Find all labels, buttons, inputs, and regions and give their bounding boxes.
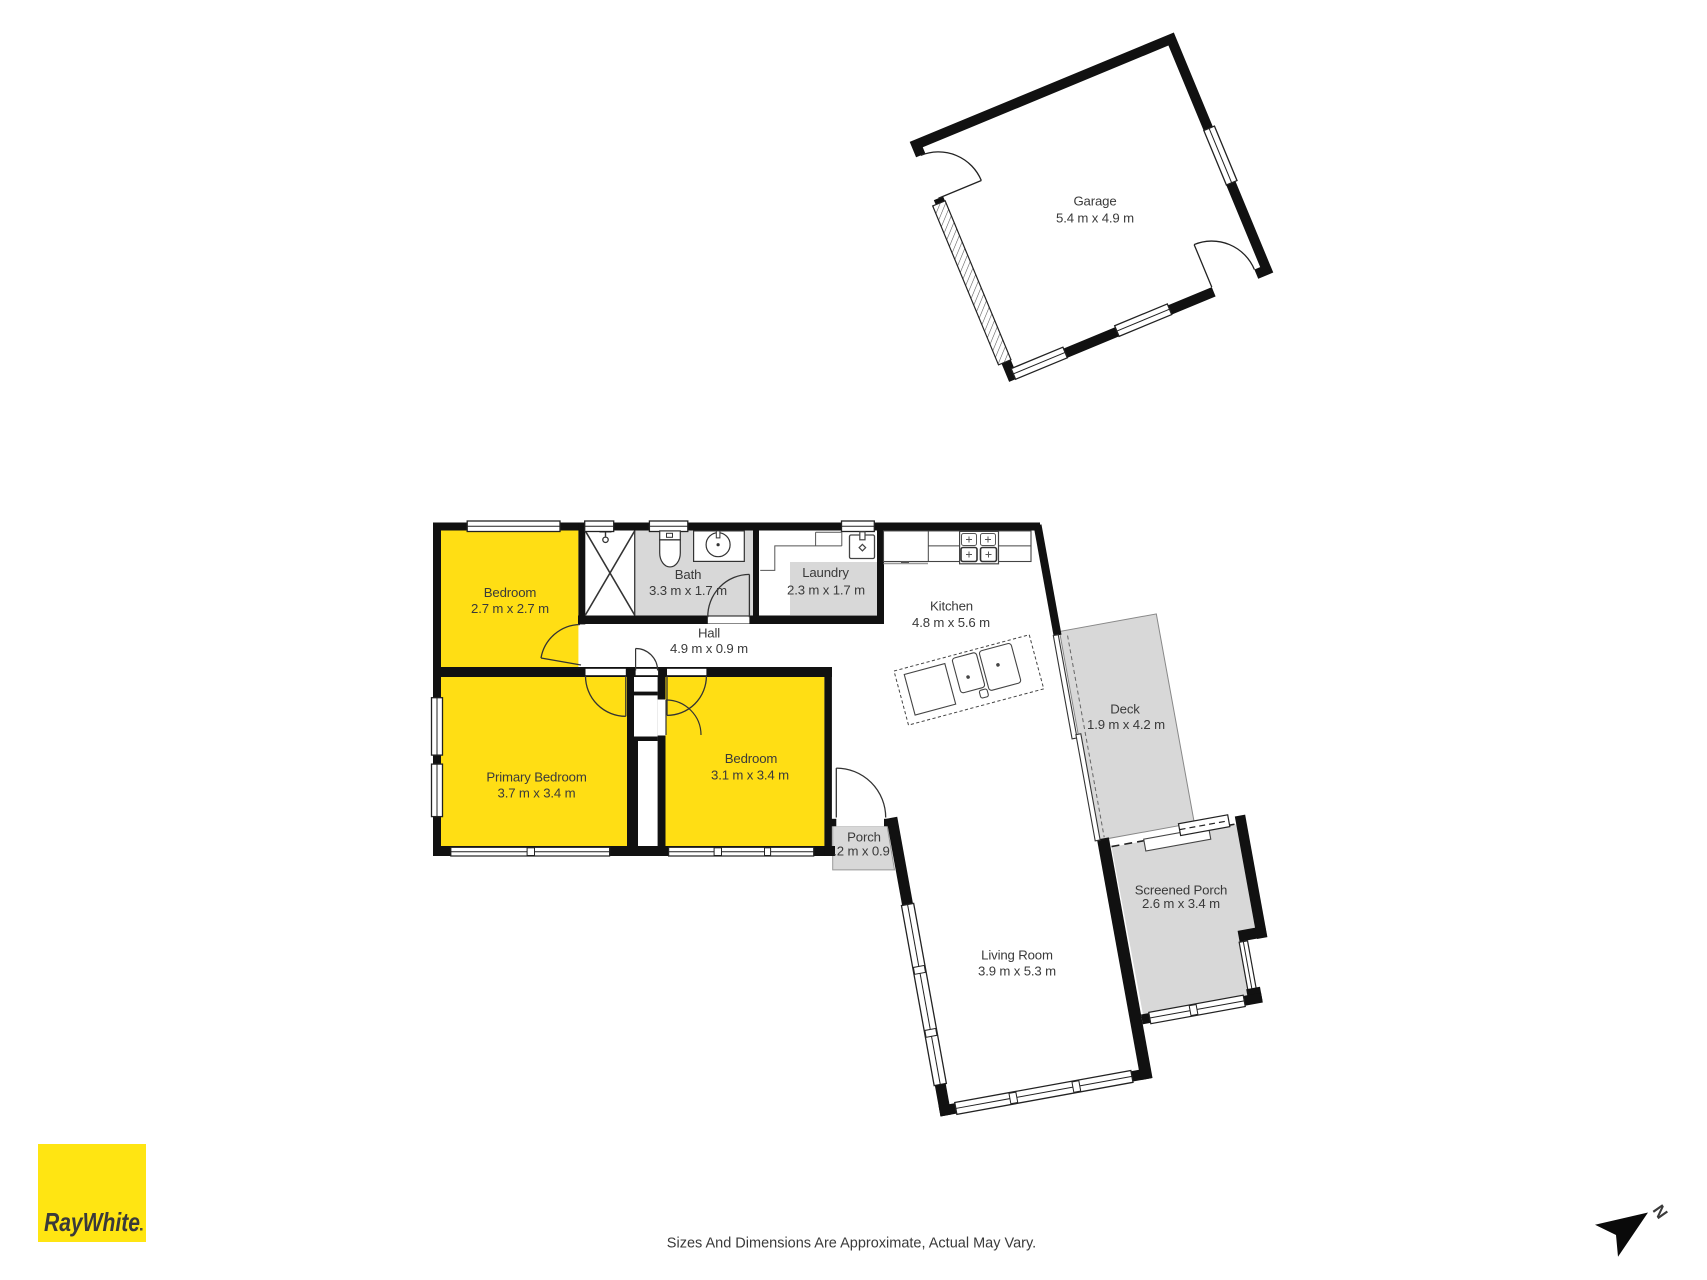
svg-text:Deck: Deck	[1110, 702, 1140, 717]
svg-text:Primary Bedroom: Primary Bedroom	[486, 770, 587, 785]
svg-text:Bath: Bath	[675, 567, 702, 582]
svg-text:RayWhite: RayWhite	[44, 1207, 140, 1237]
svg-text:Porch: Porch	[847, 830, 881, 845]
svg-text:4.9 m x 0.9 m: 4.9 m x 0.9 m	[670, 641, 748, 656]
svg-text:Garage: Garage	[1073, 194, 1116, 209]
svg-text:2.3 m x 1.7 m: 2.3 m x 1.7 m	[787, 583, 865, 598]
svg-text:Kitchen: Kitchen	[930, 599, 973, 614]
svg-text:2.7 m x 2.7 m: 2.7 m x 2.7 m	[471, 601, 549, 616]
svg-text:Hall: Hall	[698, 626, 720, 641]
svg-text:Bedroom: Bedroom	[725, 751, 778, 766]
svg-text:3.9 m x 5.3 m: 3.9 m x 5.3 m	[978, 964, 1056, 979]
svg-text:4.8 m x 5.6 m: 4.8 m x 5.6 m	[912, 615, 990, 630]
svg-text:Laundry: Laundry	[802, 565, 849, 580]
svg-text:Sizes And Dimensions Are Appro: Sizes And Dimensions Are Approximate, Ac…	[667, 1236, 1036, 1252]
svg-text:.2 m x 0.9: .2 m x 0.9	[833, 844, 889, 859]
svg-text:5.4 m x 4.9 m: 5.4 m x 4.9 m	[1056, 211, 1134, 226]
svg-text:3.1 m x 3.4 m: 3.1 m x 3.4 m	[711, 768, 789, 783]
svg-text:3.3 m x 1.7 m: 3.3 m x 1.7 m	[649, 583, 727, 598]
svg-text:Living Room: Living Room	[981, 948, 1053, 963]
svg-text:3.7 m x 3.4 m: 3.7 m x 3.4 m	[498, 786, 576, 801]
svg-text:2.6 m x 3.4 m: 2.6 m x 3.4 m	[1142, 896, 1220, 911]
svg-text:1.9 m x 4.2 m: 1.9 m x 4.2 m	[1087, 717, 1165, 732]
svg-text:Bedroom: Bedroom	[484, 585, 537, 600]
